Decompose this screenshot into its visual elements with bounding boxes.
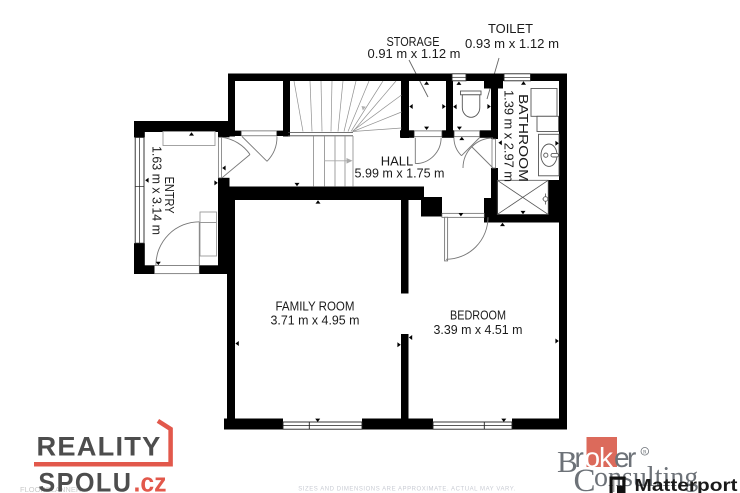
svg-text:BATHROOM: BATHROOM [516,94,531,182]
svg-text:SIZES AND DIMENSIONS ARE APPRO: SIZES AND DIMENSIONS ARE APPROXIMATE. AC… [298,487,516,493]
svg-text:3.71 m x 4.95 m: 3.71 m x 4.95 m [271,313,360,328]
svg-text:3.39 m x 4.51 m: 3.39 m x 4.51 m [434,322,523,337]
svg-text:R: R [643,449,647,455]
svg-text:1.39 m x 2.97 m: 1.39 m x 2.97 m [502,90,517,182]
svg-text:TOILET: TOILET [488,21,533,36]
svg-text:C: C [574,463,596,493]
svg-text:.cz: .cz [134,467,167,493]
svg-text:0.93 m x 1.12 m: 0.93 m x 1.12 m [465,36,559,51]
svg-text:Matterport: Matterport [635,475,738,493]
svg-text:REALITY: REALITY [37,432,162,462]
svg-text:SPOLU: SPOLU [38,467,132,493]
svg-text:FAMILY ROOM: FAMILY ROOM [276,299,355,314]
svg-text:1.63 m x 3.14 m: 1.63 m x 3.14 m [150,146,165,235]
svg-text:0.91 m x 1.12 m: 0.91 m x 1.12 m [368,46,461,61]
svg-text:5.99 m x 1.75 m: 5.99 m x 1.75 m [355,166,445,181]
svg-text:BEDROOM: BEDROOM [450,308,506,323]
